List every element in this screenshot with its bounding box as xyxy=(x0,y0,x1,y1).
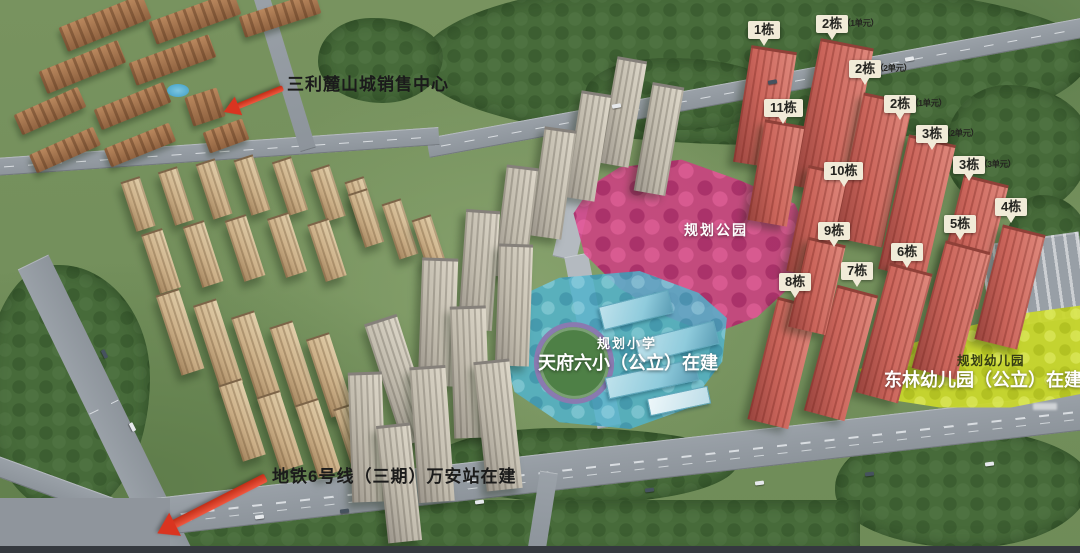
building-callout: 7栋 xyxy=(841,262,873,280)
building-callout-main: 10栋 xyxy=(830,163,857,178)
building-callout-main: 2栋 xyxy=(890,96,910,111)
callout-tail-icon xyxy=(895,112,905,120)
building-callout-main: 3栋 xyxy=(922,126,942,141)
callout-tail-icon xyxy=(860,77,870,85)
building-callout-main: 3栋 xyxy=(959,157,979,172)
callouts-layer: 1栋2栋（1单元）2栋（2单元）2栋（1单元）3栋（2单元）3栋（3单元）4栋5… xyxy=(0,0,1080,553)
building-callout: 2栋（1单元） xyxy=(816,15,848,33)
building-callout-sub: （3单元） xyxy=(979,157,1015,172)
building-callout: 3栋（2单元） xyxy=(916,125,948,143)
building-callout: 2栋（2单元） xyxy=(849,60,881,78)
callout-tail-icon xyxy=(829,239,839,247)
building-callout-sub: （1单元） xyxy=(910,96,946,111)
building-callout: 3栋（3单元） xyxy=(953,156,985,174)
building-callout-sub: （2单元） xyxy=(942,126,978,141)
building-callout: 5栋 xyxy=(944,215,976,233)
building-callout-main: 8栋 xyxy=(785,274,805,289)
building-callout-main: 2栋 xyxy=(855,61,875,76)
building-callout: 1栋 xyxy=(748,21,780,39)
callout-tail-icon xyxy=(778,116,788,124)
building-callout: 11栋 xyxy=(764,99,803,117)
callout-tail-icon xyxy=(1006,215,1016,223)
metro-line-label: 地铁6号线（三期）万安站在建 xyxy=(272,462,516,487)
callout-tail-icon xyxy=(955,232,965,240)
building-callout-main: 2栋 xyxy=(822,16,842,31)
building-callout-main: 9栋 xyxy=(824,223,844,238)
bottom-window-edge xyxy=(0,546,1080,553)
callout-tail-icon xyxy=(790,290,800,298)
building-callout-main: 11栋 xyxy=(770,100,797,115)
kindergarten-name-label: 东林幼儿园（公立）在建 xyxy=(884,366,1080,392)
building-callout-sub: （1单元） xyxy=(842,16,878,31)
callout-tail-icon xyxy=(927,142,937,150)
building-callout: 9栋 xyxy=(818,222,850,240)
callout-tail-icon xyxy=(839,179,849,187)
building-callout-main: 1栋 xyxy=(754,22,774,37)
planned-park-label: 规划公园 xyxy=(684,220,748,240)
building-callout-main: 5栋 xyxy=(950,216,970,231)
building-callout: 8栋 xyxy=(779,273,811,291)
callout-tail-icon xyxy=(902,260,912,268)
callout-tail-icon xyxy=(827,32,837,40)
building-callout: 6栋 xyxy=(891,243,923,261)
building-callout: 4栋 xyxy=(995,198,1027,216)
masterplan-aerial-map: 1栋2栋（1单元）2栋（2单元）2栋（1单元）3栋（2单元）3栋（3单元）4栋5… xyxy=(0,0,1080,553)
building-callout: 10栋 xyxy=(824,162,863,180)
building-callout-main: 4栋 xyxy=(1001,199,1021,214)
school-name-label: 天府六小（公立）在建 xyxy=(538,349,718,375)
building-callout-main: 7栋 xyxy=(847,263,867,278)
street-sign-text xyxy=(1033,403,1057,410)
callout-tail-icon xyxy=(964,173,974,181)
callout-tail-icon xyxy=(852,279,862,287)
building-callout: 2栋（1单元） xyxy=(884,95,916,113)
callout-tail-icon xyxy=(759,38,769,46)
building-callout-main: 6栋 xyxy=(897,244,917,259)
sales-center-label: 三利麓山城销售中心 xyxy=(287,70,449,95)
building-callout-sub: （2单元） xyxy=(875,61,911,76)
